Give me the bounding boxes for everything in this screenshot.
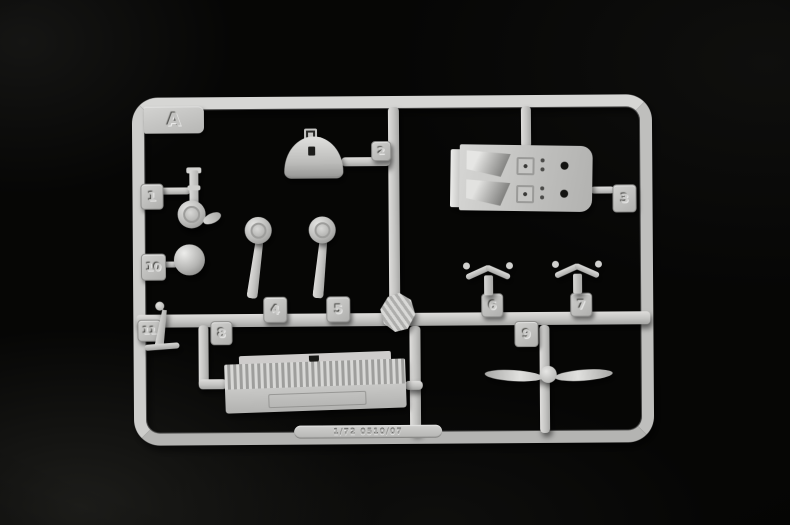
part3-upper-hole bbox=[560, 162, 568, 170]
part-9-propeller bbox=[485, 362, 613, 387]
skid-leg bbox=[155, 309, 169, 346]
gear-wheel bbox=[178, 200, 206, 228]
part-4-wheel bbox=[245, 217, 272, 244]
yoke-tip-right bbox=[595, 261, 602, 268]
skid-base bbox=[144, 342, 179, 351]
part-10-ball bbox=[174, 244, 205, 275]
fairing-ribbed-face bbox=[380, 293, 415, 332]
runner-stub-part3 bbox=[590, 186, 614, 193]
part-6-control-yoke bbox=[463, 262, 513, 297]
cowl-dome-body bbox=[284, 136, 343, 178]
part-7-control-yoke bbox=[552, 261, 602, 296]
model-kit-sprue: A 1 2 3 4 5 6 7 8 9 10 11 bbox=[132, 94, 654, 446]
part3-rivet-hole bbox=[540, 186, 544, 190]
part-4-wheel-hub bbox=[250, 222, 267, 239]
embossed-code-text: 1/72 0510/07 bbox=[333, 427, 403, 436]
part-tag-7: 7 bbox=[570, 293, 592, 317]
yoke-tip-left bbox=[552, 261, 559, 268]
part-tag-8: 8 bbox=[210, 321, 232, 345]
part-5-wheel bbox=[309, 216, 336, 243]
yoke-tip-right bbox=[506, 262, 513, 269]
sprue-letter-block: A bbox=[144, 106, 204, 133]
part-tag-1: 1 bbox=[140, 184, 163, 210]
yoke-stem bbox=[573, 274, 582, 294]
part-2-cowl-dome bbox=[284, 124, 354, 179]
part-5-wheel-hub bbox=[314, 222, 331, 239]
propeller-blade-left bbox=[484, 368, 543, 383]
part-tag-4: 4 bbox=[263, 297, 287, 323]
part-8-louvered-panel bbox=[223, 350, 408, 413]
part3-rivet-hole bbox=[540, 195, 544, 199]
skid-knob bbox=[155, 302, 164, 311]
gear-wheel-hub bbox=[183, 206, 200, 223]
runner-stub-part8-right bbox=[405, 381, 423, 390]
sprue-letter-label: A bbox=[167, 109, 181, 130]
part3-lower-hole bbox=[560, 190, 568, 198]
runner-drop-part8 bbox=[198, 325, 208, 387]
part3-upper-recess bbox=[516, 157, 534, 175]
part-3-center-section bbox=[450, 144, 593, 212]
part3-rivet-hole bbox=[541, 158, 545, 162]
part3-lower-recess bbox=[516, 185, 534, 203]
part-11-tail-skid bbox=[144, 301, 184, 351]
part-tag-9: 9 bbox=[514, 321, 538, 347]
photo-stage: A 1 2 3 4 5 6 7 8 9 10 11 bbox=[0, 0, 790, 525]
runner-vertical-part2 bbox=[388, 107, 400, 301]
runner-elbow-part8 bbox=[199, 379, 227, 389]
part-tag-2: 2 bbox=[371, 141, 391, 161]
part-1-landing-gear bbox=[177, 165, 227, 235]
propeller-blade-right bbox=[554, 367, 613, 382]
part3-rivet-hole bbox=[540, 167, 544, 171]
part-tag-10: 10 bbox=[141, 254, 166, 281]
yoke-stem bbox=[484, 275, 493, 295]
part-tag-5: 5 bbox=[326, 296, 350, 322]
gear-strut-collar bbox=[187, 185, 200, 190]
propeller-hub bbox=[540, 366, 557, 383]
cowl-slot-hole bbox=[308, 147, 315, 156]
embossed-code-plate: 1/72 0510/07 bbox=[294, 425, 442, 439]
teardrop-fairing-part bbox=[380, 293, 415, 332]
runner-gate-part3 bbox=[521, 106, 531, 148]
yoke-tip-left bbox=[463, 262, 470, 269]
part-tag-3: 3 bbox=[612, 184, 636, 212]
